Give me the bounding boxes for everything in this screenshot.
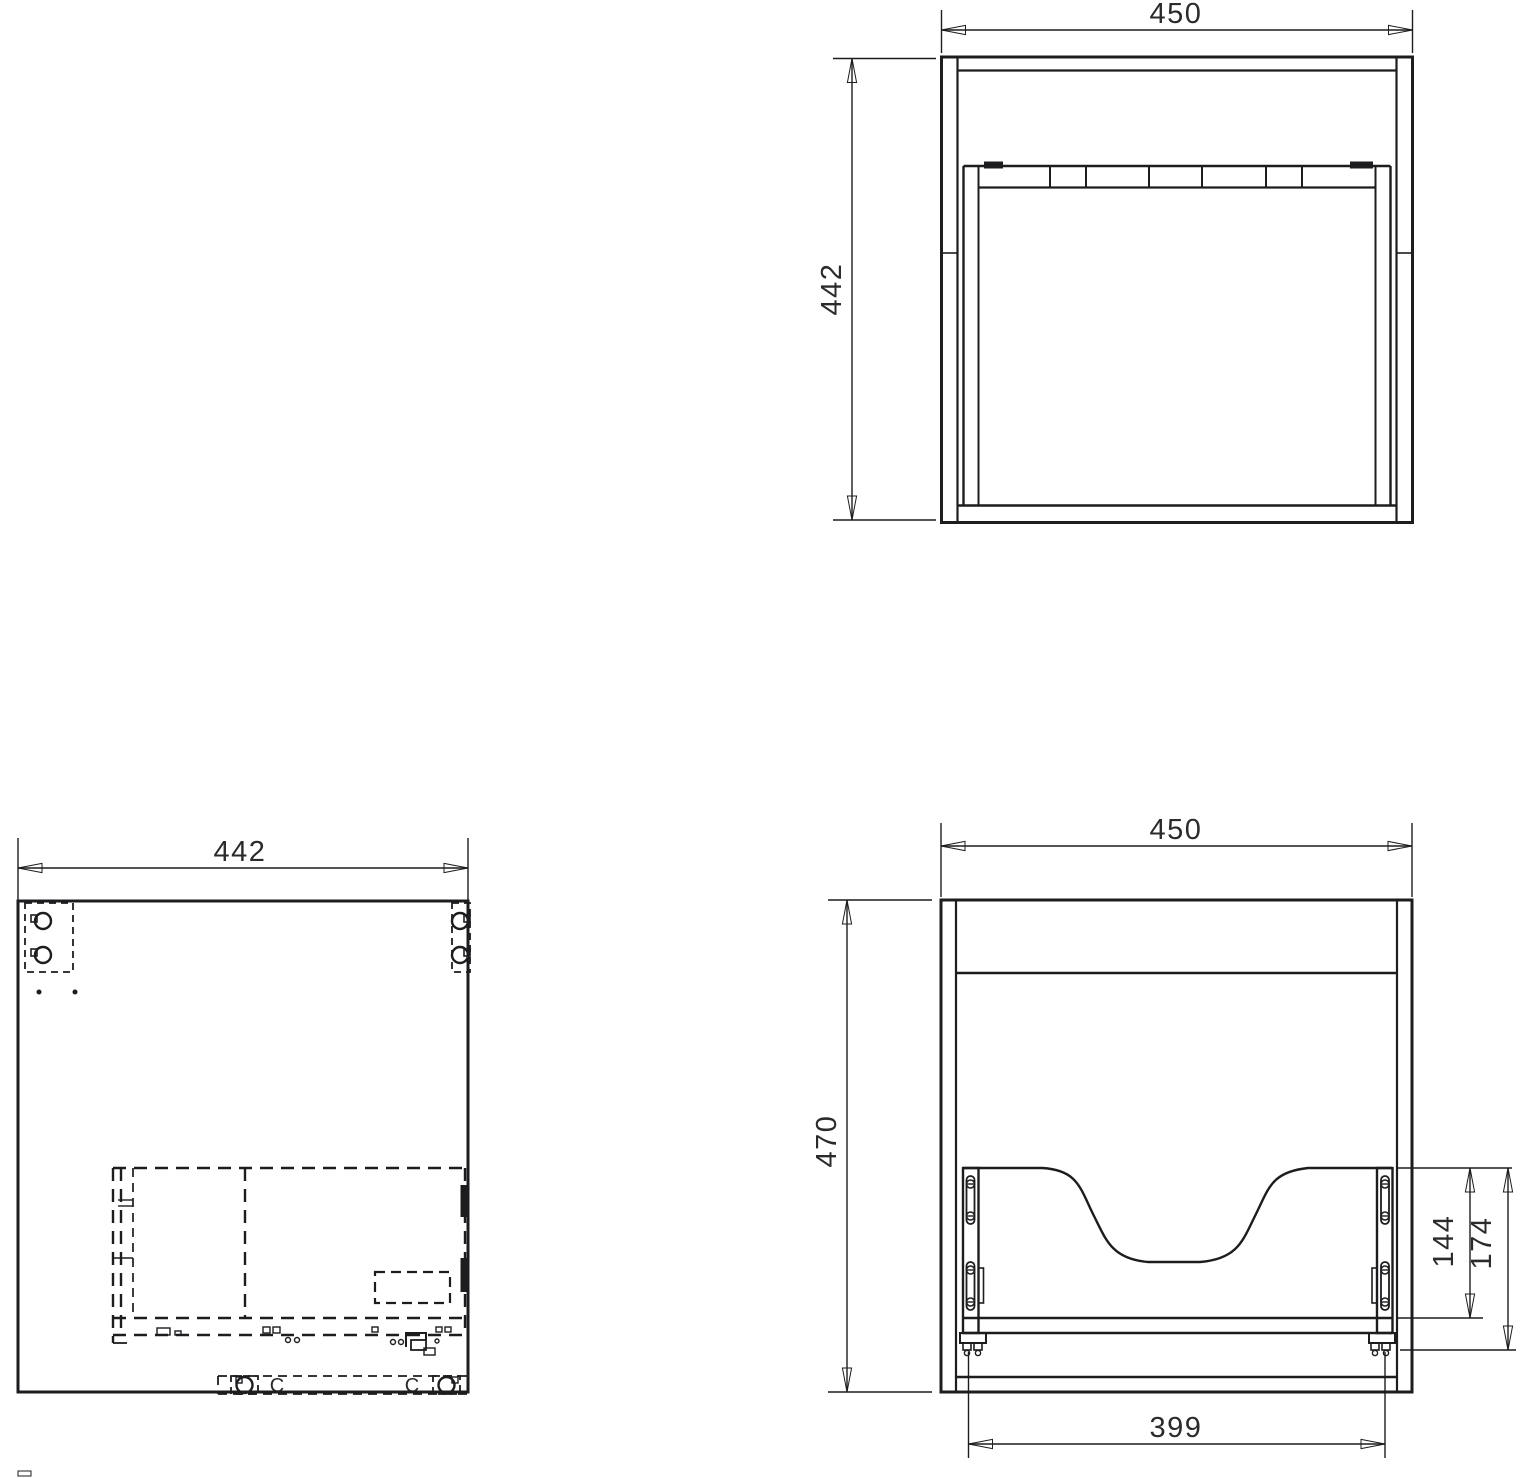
drawer-runner-right [1369,1168,1395,1356]
runner-foot [1369,1333,1395,1343]
cam-lock-icon [31,947,51,963]
runner-foot-pad [1382,1343,1390,1350]
runner-slot [967,1176,975,1224]
drawing-sheet: 450 442 [0,0,1531,1478]
dimension-carcass-plan-width: 442 [18,836,468,900]
drawer-runner-left [960,1168,986,1356]
dim-label-runner-span: 399 [1150,1412,1203,1444]
runner-foot [960,1333,986,1343]
runner-foot-pad [963,1343,971,1350]
dim-label-cutout-height: 144 [1428,1215,1460,1268]
corner-bracket-mark-right [1350,162,1373,169]
fitting-mark [273,1327,280,1333]
runner-foot-pad [974,1343,982,1350]
cropped-artifact [18,1471,31,1476]
fitting-mark [263,1327,270,1333]
dim-label-basin-front-width: 450 [1150,814,1203,846]
carcass-front-outline [942,57,1413,523]
dimension-carcass-front-height: 442 [816,59,936,521]
drawer-hardware-marks [157,1327,451,1355]
screw-icon [391,1340,396,1345]
screw-icon [286,1338,291,1343]
carcass-plan-view: 442 [18,836,470,1397]
dimension-carcass-front-width: 450 [942,0,1413,53]
technical-drawing-canvas: 450 442 [0,0,1531,1478]
screw-icon [1381,1180,1389,1188]
screw-icon [967,1266,975,1274]
screw-icon [295,1338,300,1343]
dim-label-carcass-front-width: 450 [1150,0,1203,30]
fitting-mark [175,1331,181,1335]
dim-label-basin-front-height: 470 [811,1115,843,1168]
runner-slot [1381,1176,1389,1224]
dimension-basin-front-width: 450 [941,814,1412,897]
runner-body [1377,1168,1393,1333]
cam-lock-icon [31,913,51,929]
cam-label-left: C [270,1375,284,1397]
dimension-basin-front-height: 470 [811,900,932,1392]
screw-icon [1383,1350,1388,1355]
screw-icon [435,1339,439,1343]
carcass-outer-edge [942,57,1413,523]
dowel-hole-mark [37,990,42,995]
fitting-mark [445,1327,451,1332]
basin-cutout-panel [963,1168,1392,1262]
screw-icon [967,1298,975,1306]
basin-front-view: 450 470 [811,814,1516,1458]
wall-bracket-left [25,903,73,972]
dowel-hole-mark [73,990,78,995]
runner-slot [1381,1262,1389,1310]
dim-label-carcass-plan-width: 442 [214,836,267,868]
drawer-hidden-outline [113,1168,469,1343]
cam-label-right: C [405,1375,419,1397]
screw-icon [967,1212,975,1220]
runner-slot [967,1262,975,1310]
runner-tab [979,1268,984,1303]
runner-tab [1372,1268,1377,1303]
dim-label-carcass-front-height: 442 [816,263,848,316]
corner-bracket-mark-left [984,162,1003,169]
dimension-runner-span: 399 [969,1352,1386,1458]
screw-icon [1381,1212,1389,1220]
fitting-mark [436,1327,442,1332]
carcass-drawer-box [964,162,1391,506]
front-rail-hidden-strip: C C [218,1375,468,1397]
bottom-rail [963,1318,1392,1333]
fitting-mark [372,1327,378,1332]
screw-icon [975,1350,980,1355]
dim-label-rail-offset: 174 [1466,1217,1498,1270]
screw-icon [967,1180,975,1188]
drawer-back-hidden-box [375,1272,450,1303]
screw-icon [399,1340,404,1345]
screw-icon [1372,1350,1377,1355]
carcass-front-view: 450 442 [816,0,1413,523]
runner-foot-pad [1371,1343,1379,1350]
screw-icon [1381,1266,1389,1274]
screw-icon [1381,1298,1389,1306]
runner-body [963,1168,979,1333]
